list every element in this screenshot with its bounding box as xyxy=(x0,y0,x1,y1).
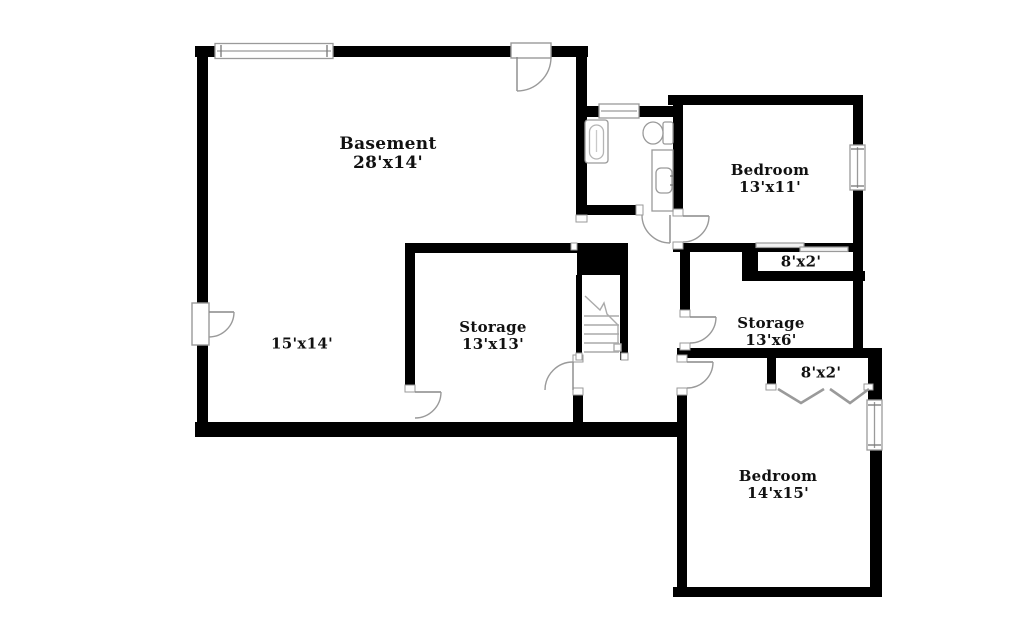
room-dims: 13'x6' xyxy=(737,332,805,349)
label-storage-13x6: Storage 13'x6' xyxy=(737,315,805,349)
room-dims: 28'x14' xyxy=(339,154,436,173)
room-dims: 8'x2' xyxy=(781,254,822,271)
room-dims: 13'x11' xyxy=(731,179,810,196)
bathtub xyxy=(585,120,608,163)
room-dims: 8'x2' xyxy=(801,365,842,382)
room-name: Storage xyxy=(737,315,805,332)
label-basement: Basement 28'x14' xyxy=(339,135,436,173)
label-basement-area-15x14: 15'x14' xyxy=(271,336,333,353)
label-storage-13x13: Storage 13'x13' xyxy=(459,319,527,353)
door-storage-13x13-basement xyxy=(415,392,441,418)
room-name: Storage xyxy=(459,319,527,336)
window-basement-top xyxy=(215,44,333,59)
room-name: Bedroom xyxy=(731,162,810,179)
label-bedroom-14x15: Bedroom 14'x15' xyxy=(739,468,818,502)
door-storage-13x13-hall xyxy=(545,362,573,390)
door-storage-13x6 xyxy=(690,317,716,343)
toilet xyxy=(643,122,673,144)
room-name: Bedroom xyxy=(739,468,818,485)
room-dims: 14'x15' xyxy=(739,485,818,502)
door-bedroom-14x15 xyxy=(687,362,713,388)
label-closet-upper-8x2: 8'x2' xyxy=(781,254,822,271)
stairs xyxy=(584,296,621,352)
room-name: Basement xyxy=(339,135,436,154)
label-bedroom-13x11: Bedroom 13'x11' xyxy=(731,162,810,196)
doors xyxy=(192,43,716,418)
door-bedroom-13x11 xyxy=(683,216,709,242)
room-dims: 13'x13' xyxy=(459,336,527,353)
window-bedroom-13x11 xyxy=(850,145,865,190)
door-basement-left-exterior xyxy=(192,303,234,345)
room-dims: 15'x14' xyxy=(271,336,333,353)
window-bathroom xyxy=(599,104,639,118)
floor-plan: Basement 28'x14' 15'x14' Storage 13'x13'… xyxy=(0,0,1024,635)
door-bathroom xyxy=(642,215,670,243)
window-bedroom-14x15 xyxy=(867,400,882,450)
label-closet-lower-8x2: 8'x2' xyxy=(801,365,842,382)
bifold-closet-doors xyxy=(778,389,869,403)
sink-vanity xyxy=(652,150,673,211)
door-basement-top xyxy=(511,43,551,91)
